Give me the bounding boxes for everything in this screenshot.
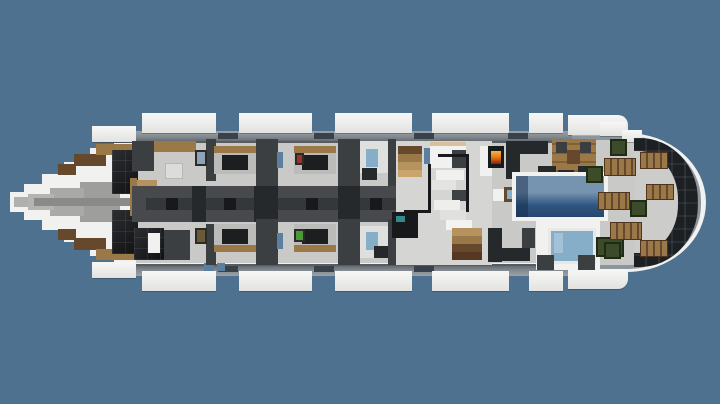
fore-wardrobe xyxy=(132,141,154,171)
planter-3 xyxy=(632,202,645,215)
desk-monitor xyxy=(396,216,405,222)
galley-fridge xyxy=(148,233,160,253)
sun-lounger-6 xyxy=(640,240,668,257)
sun-lounger-3 xyxy=(610,222,642,240)
pool-shadow xyxy=(516,176,528,217)
balcony-top-3 xyxy=(335,113,412,133)
spiral-step-5 xyxy=(440,210,466,220)
corridor-block-1 xyxy=(166,198,178,210)
painting-fore-top xyxy=(197,152,205,164)
lounge-sofa-bottom-2 xyxy=(502,248,530,261)
galley-counter-gray xyxy=(164,230,190,260)
upper-stair-step-3 xyxy=(398,162,422,170)
balcony-bottom-5 xyxy=(529,271,563,291)
fore-table xyxy=(166,164,182,178)
balcony-bottom-3 xyxy=(335,271,412,291)
cabin-porthole-2 xyxy=(217,263,225,271)
sun-lounger-5 xyxy=(646,184,674,200)
lounge-sofa-bottom-3 xyxy=(522,228,535,248)
balcony-top-4 xyxy=(432,113,509,133)
dining-table xyxy=(567,150,580,164)
lounge-white-block xyxy=(493,189,504,201)
balcony-top-1 xyxy=(142,113,216,133)
stair-railing-1 xyxy=(428,164,431,212)
bow-deck-centerline xyxy=(34,198,130,206)
cabin-window-1-top xyxy=(277,152,283,168)
bed-2-blanket xyxy=(302,155,328,170)
cabin-wall-2-top xyxy=(338,139,360,186)
cabin-window-1-bottom xyxy=(277,233,283,249)
bathroom-top-vanity xyxy=(362,168,377,180)
stern-balcony-bottom xyxy=(568,269,628,289)
corridor-pillar-3 xyxy=(338,186,360,222)
bow-tip-deck xyxy=(14,197,28,207)
lounge-sofa-bottom-1 xyxy=(488,228,502,262)
bed-3-headboard xyxy=(214,245,256,252)
bow-balcony-bottom xyxy=(92,262,136,278)
spiral-step-2 xyxy=(432,180,456,190)
balcony-bottom-1 xyxy=(142,271,216,291)
corridor-pillar-2 xyxy=(254,186,278,222)
cabin-wall-1-bottom xyxy=(256,219,278,265)
spiral-step-1 xyxy=(436,170,464,180)
minecraft-world-view[interactable] xyxy=(0,0,720,404)
hull-window-top-1 xyxy=(218,133,238,139)
deckhouse-stair-right xyxy=(578,255,595,270)
painting-fore-bottom xyxy=(197,230,205,242)
deckhouse-stair-left xyxy=(537,255,554,270)
skylight-reflection xyxy=(554,233,563,253)
lower-stair-step-1 xyxy=(452,228,482,236)
upper-stair-step-4 xyxy=(398,170,422,177)
stair-railing-4 xyxy=(438,154,469,157)
corridor-block-3 xyxy=(306,198,318,210)
spiral-step-3 xyxy=(430,190,452,200)
spiral-stair-core xyxy=(452,150,466,168)
bed-4-blanket xyxy=(302,229,328,244)
upper-stair-step-1 xyxy=(398,146,422,154)
dining-chair-2 xyxy=(580,142,591,153)
bathroom-top-shower xyxy=(366,149,378,167)
balcony-bottom-4 xyxy=(432,271,509,291)
fireplace-fire xyxy=(491,151,501,164)
hull-window-top-4 xyxy=(508,133,528,139)
planter-2 xyxy=(588,168,601,181)
lower-stair-step-4 xyxy=(452,252,482,260)
hull-window-bottom-3 xyxy=(414,266,434,272)
corridor-block-2 xyxy=(224,198,236,210)
corridor-block-4 xyxy=(370,198,382,210)
bow-trim-top-b xyxy=(74,154,106,166)
planter-4 xyxy=(606,244,619,257)
cabin-wall-2-bottom xyxy=(338,219,360,265)
lounge-sofa-top-2 xyxy=(520,141,548,154)
bed-4-headboard xyxy=(294,245,336,252)
hull-window-top-2 xyxy=(314,133,334,139)
balcony-bottom-2 xyxy=(239,271,312,291)
bed-1-blanket xyxy=(222,155,248,170)
painting-cabin-red xyxy=(297,155,302,163)
hull-window-top-3 xyxy=(414,133,434,139)
sun-lounger-4 xyxy=(640,152,668,169)
spiral-step-4 xyxy=(434,200,460,210)
painting-cabin-green xyxy=(296,231,303,240)
balcony-top-5 xyxy=(529,113,563,133)
bed-3-blanket xyxy=(222,229,248,244)
sun-lounger-2 xyxy=(598,192,630,210)
upper-stair-step-2 xyxy=(398,154,422,162)
pool-water xyxy=(516,176,604,217)
balcony-top-2 xyxy=(239,113,312,133)
fore-shelf xyxy=(154,141,196,152)
cabin-wall-1-top xyxy=(256,139,278,186)
planter-1 xyxy=(612,141,625,154)
dining-chair-1 xyxy=(556,142,567,153)
bed-2-headboard xyxy=(294,146,336,153)
lower-stair-step-3 xyxy=(452,244,482,252)
bow-balcony-top xyxy=(92,126,136,142)
bed-1-headboard xyxy=(214,146,256,153)
stair-railing-3 xyxy=(466,156,469,212)
sun-lounger-1 xyxy=(604,158,636,176)
bathroom-top-wall xyxy=(388,139,396,186)
lower-stair-step-2 xyxy=(452,236,482,244)
bathroom-bottom-vanity xyxy=(374,246,388,258)
hull-window-bottom-2 xyxy=(314,266,334,272)
corridor-pillar-1 xyxy=(192,186,206,222)
